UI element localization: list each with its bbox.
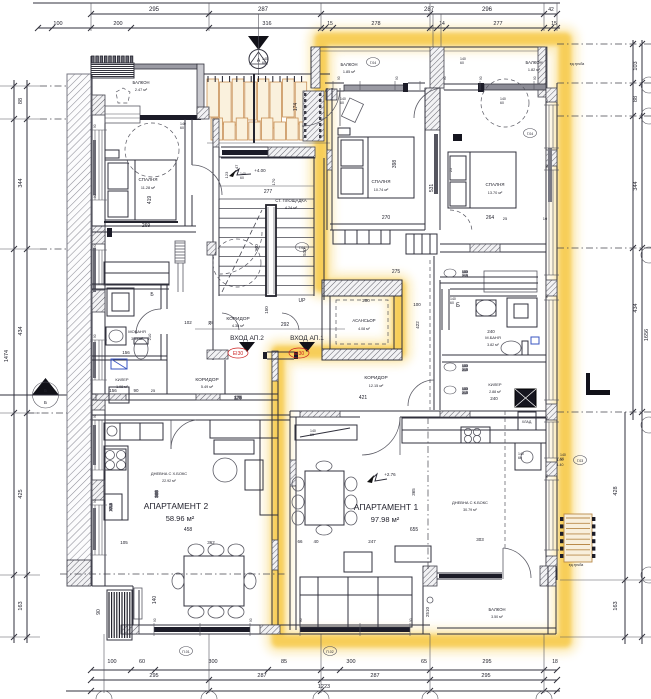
svg-text:БАЛКОН: БАЛКОН bbox=[133, 80, 150, 85]
svg-text:4.08 м²: 4.08 м² bbox=[358, 327, 370, 331]
svg-text:UP: UP bbox=[299, 298, 307, 304]
svg-text:210: 210 bbox=[147, 333, 152, 340]
svg-text:Г.04: Г.04 bbox=[299, 246, 305, 250]
svg-text:М.БАНЯ: М.БАНЯ bbox=[485, 335, 501, 340]
svg-text:344: 344 bbox=[18, 178, 24, 187]
svg-text:422: 422 bbox=[415, 321, 420, 329]
svg-text:66: 66 bbox=[297, 539, 303, 544]
svg-text:14: 14 bbox=[439, 21, 445, 27]
svg-text:15: 15 bbox=[327, 21, 333, 27]
svg-text:3.50 м²: 3.50 м² bbox=[491, 615, 503, 619]
svg-text:90: 90 bbox=[479, 76, 483, 80]
svg-text:3.13 м²: 3.13 м² bbox=[131, 337, 143, 341]
svg-text:287: 287 bbox=[257, 673, 266, 679]
svg-text:90: 90 bbox=[545, 164, 549, 168]
svg-text:1474: 1474 bbox=[4, 350, 10, 362]
svg-text:425: 425 bbox=[18, 489, 24, 498]
svg-text:277: 277 bbox=[493, 21, 502, 27]
svg-text:60: 60 bbox=[450, 301, 454, 305]
svg-text:344: 344 bbox=[633, 181, 639, 190]
svg-text:25: 25 bbox=[448, 167, 453, 172]
svg-text:13.70 м²: 13.70 м² bbox=[488, 191, 503, 195]
svg-text:215: 215 bbox=[462, 391, 468, 395]
svg-text:362: 362 bbox=[207, 540, 215, 545]
svg-text:1656: 1656 bbox=[644, 329, 650, 341]
svg-text:90: 90 bbox=[337, 76, 341, 80]
svg-text:ед.тръба: ед.тръба bbox=[570, 62, 585, 66]
svg-text:200: 200 bbox=[362, 298, 370, 303]
svg-text:СПАЛНЯ: СПАЛНЯ bbox=[485, 182, 504, 187]
svg-text:90: 90 bbox=[299, 618, 303, 622]
svg-text:Г.04: Г.04 bbox=[527, 132, 533, 136]
svg-text:3.82 м²: 3.82 м² bbox=[487, 343, 499, 347]
svg-text:60: 60 bbox=[180, 126, 184, 130]
svg-text:Г.03: Г.03 bbox=[577, 459, 583, 463]
svg-text:СПАЛНЯ: СПАЛНЯ bbox=[371, 179, 390, 184]
svg-text:60: 60 bbox=[262, 61, 266, 65]
svg-text:287: 287 bbox=[424, 7, 435, 13]
svg-text:269: 269 bbox=[142, 223, 151, 229]
svg-text:150: 150 bbox=[264, 306, 269, 314]
svg-text:295: 295 bbox=[482, 659, 491, 665]
svg-text:170: 170 bbox=[271, 178, 276, 185]
svg-text:1.82 м²: 1.82 м² bbox=[528, 68, 541, 72]
svg-text:СТ. ПЛОЩАДКА: СТ. ПЛОЩАДКА bbox=[275, 198, 306, 203]
svg-text:ДНЕВНА С К.БОКС: ДНЕВНА С К.БОКС bbox=[452, 500, 488, 505]
svg-text:398: 398 bbox=[392, 160, 398, 169]
svg-text:60: 60 bbox=[460, 61, 464, 65]
svg-text:368: 368 bbox=[154, 490, 159, 498]
svg-text:296: 296 bbox=[482, 7, 493, 13]
svg-text:БАЛКОН: БАЛКОН bbox=[489, 607, 506, 612]
svg-text:КОРИДОР: КОРИДОР bbox=[195, 377, 218, 383]
svg-text:П.01: П.01 bbox=[182, 650, 189, 654]
svg-text:2.47 м²: 2.47 м² bbox=[135, 88, 148, 92]
svg-text:4.38 м²: 4.38 м² bbox=[232, 324, 245, 328]
svg-text:Б: Б bbox=[44, 400, 47, 405]
svg-text:295: 295 bbox=[481, 673, 490, 679]
svg-text:Б: Б bbox=[456, 303, 460, 309]
svg-text:295: 295 bbox=[149, 673, 158, 679]
svg-text:5.49 м²: 5.49 м² bbox=[201, 385, 214, 389]
svg-text:434: 434 bbox=[633, 303, 639, 312]
svg-text:90: 90 bbox=[395, 76, 399, 80]
svg-text:90: 90 bbox=[249, 618, 253, 622]
svg-text:200: 200 bbox=[113, 21, 122, 27]
svg-text:278: 278 bbox=[371, 21, 380, 27]
svg-text:247: 247 bbox=[368, 539, 376, 544]
svg-text:90: 90 bbox=[153, 618, 157, 622]
svg-text:1.98 м²: 1.98 м² bbox=[116, 385, 128, 389]
svg-text:КОРИДОР: КОРИДОР bbox=[364, 375, 387, 381]
svg-text:КИЛЕР: КИЛЕР bbox=[115, 377, 128, 382]
svg-text:90: 90 bbox=[93, 334, 97, 338]
svg-text:БАЛКОН: БАЛКОН bbox=[526, 60, 543, 65]
svg-text:АСАНСЬОР: АСАНСЬОР bbox=[352, 318, 375, 323]
svg-text:90: 90 bbox=[545, 416, 549, 420]
svg-text:88: 88 bbox=[633, 96, 639, 102]
svg-text:1.00: 1.00 bbox=[557, 458, 564, 462]
svg-text:434: 434 bbox=[18, 326, 24, 335]
svg-text:100: 100 bbox=[413, 302, 421, 307]
svg-text:11.28 м²: 11.28 м² bbox=[141, 186, 156, 190]
svg-text:240: 240 bbox=[487, 329, 495, 334]
svg-text:25: 25 bbox=[151, 388, 156, 393]
svg-text:ДНЕВНА С Х.БОКС: ДНЕВНА С Х.БОКС bbox=[151, 471, 187, 476]
svg-text:АПАРТАМЕНТ 2: АПАРТАМЕНТ 2 bbox=[144, 501, 209, 511]
svg-text:421: 421 bbox=[359, 395, 368, 401]
svg-text:300: 300 bbox=[208, 659, 217, 665]
svg-text:140: 140 bbox=[152, 596, 158, 605]
svg-text:+4.00: +4.00 bbox=[254, 168, 266, 173]
svg-text:163: 163 bbox=[613, 601, 619, 610]
svg-text:90: 90 bbox=[533, 76, 537, 80]
svg-text:123: 123 bbox=[224, 171, 229, 178]
svg-text:60: 60 bbox=[310, 433, 314, 437]
svg-text:КОРИДОР: КОРИДОР bbox=[226, 316, 249, 322]
svg-text:90: 90 bbox=[96, 609, 102, 615]
svg-text:60: 60 bbox=[340, 101, 344, 105]
svg-text:58.96 м²: 58.96 м² bbox=[166, 514, 195, 523]
svg-text:287: 287 bbox=[258, 7, 269, 13]
svg-text:156: 156 bbox=[122, 350, 130, 355]
svg-text:ВХОД АП.2: ВХОД АП.2 bbox=[230, 335, 264, 342]
svg-text:25: 25 bbox=[209, 320, 214, 325]
svg-text:103: 103 bbox=[633, 61, 639, 70]
svg-text:П.02: П.02 bbox=[326, 650, 333, 654]
svg-text:105: 105 bbox=[120, 540, 128, 545]
svg-text:40: 40 bbox=[313, 539, 319, 544]
svg-text:Г.04: Г.04 bbox=[370, 61, 376, 65]
svg-text:12.15 м²: 12.15 м² bbox=[369, 384, 384, 388]
svg-text:МОБАНЯ: МОБАНЯ bbox=[128, 329, 146, 334]
svg-text:240: 240 bbox=[490, 396, 498, 401]
svg-text:100: 100 bbox=[53, 21, 62, 27]
svg-text:365: 365 bbox=[411, 488, 416, 496]
svg-text:85: 85 bbox=[281, 659, 287, 665]
svg-text:+2.76: +2.76 bbox=[384, 472, 396, 477]
svg-text:90: 90 bbox=[93, 124, 97, 128]
svg-text:60: 60 bbox=[500, 101, 504, 105]
svg-text:175: 175 bbox=[234, 395, 242, 400]
svg-text:264: 264 bbox=[486, 215, 495, 221]
svg-text:ВХОД АП.1: ВХОД АП.1 bbox=[290, 335, 324, 342]
svg-text:1223: 1223 bbox=[318, 684, 330, 690]
svg-text:88: 88 bbox=[18, 98, 24, 104]
svg-text:458: 458 bbox=[184, 527, 193, 533]
svg-text:419: 419 bbox=[147, 196, 153, 205]
svg-text:90: 90 bbox=[93, 194, 97, 198]
svg-text:15: 15 bbox=[551, 21, 557, 27]
svg-text:42: 42 bbox=[548, 7, 554, 13]
svg-text:1.85 м²: 1.85 м² bbox=[343, 70, 356, 74]
svg-text:275: 275 bbox=[392, 269, 401, 275]
svg-text:ХЛ.В: ХЛ.В bbox=[109, 502, 113, 511]
svg-text:90: 90 bbox=[545, 99, 549, 103]
svg-text:КИЛЕР: КИЛЕР bbox=[488, 382, 501, 387]
svg-text:БАЛКОН: БАЛКОН bbox=[341, 62, 358, 67]
svg-text:65: 65 bbox=[421, 659, 427, 665]
svg-text:215: 215 bbox=[462, 368, 468, 372]
svg-text:100: 100 bbox=[107, 659, 116, 665]
svg-text:60: 60 bbox=[240, 176, 244, 180]
svg-text:295: 295 bbox=[149, 7, 160, 13]
svg-text:АПАРТАМЕНТ 1: АПАРТАМЕНТ 1 bbox=[354, 502, 419, 512]
svg-text:90: 90 bbox=[545, 294, 549, 298]
svg-text:90: 90 bbox=[545, 474, 549, 478]
svg-text:22.92 м²: 22.92 м² bbox=[162, 479, 176, 483]
svg-text:428: 428 bbox=[613, 486, 619, 495]
svg-text:EI30: EI30 bbox=[233, 351, 244, 357]
svg-text:10.74 м²: 10.74 м² bbox=[374, 188, 389, 192]
svg-text:215: 215 bbox=[462, 274, 468, 278]
svg-text:97.98 м²: 97.98 м² bbox=[371, 515, 400, 524]
svg-text:EI30: EI30 bbox=[294, 351, 305, 357]
svg-text:240: 240 bbox=[254, 244, 259, 252]
svg-text:1.40: 1.40 bbox=[557, 463, 564, 467]
svg-text:531: 531 bbox=[429, 184, 435, 193]
svg-text:4.24 м²: 4.24 м² bbox=[285, 206, 298, 210]
svg-text:2510: 2510 bbox=[425, 606, 430, 617]
svg-text:2.88 м²: 2.88 м² bbox=[489, 390, 501, 394]
svg-text:90: 90 bbox=[93, 414, 97, 418]
svg-text:174: 174 bbox=[293, 103, 299, 112]
svg-text:316: 316 bbox=[262, 21, 271, 27]
svg-text:90: 90 bbox=[93, 499, 97, 503]
svg-text:90: 90 bbox=[409, 618, 413, 622]
svg-text:Б: Б bbox=[44, 388, 47, 393]
svg-text:300: 300 bbox=[346, 659, 355, 665]
svg-text:СПАЛНЯ: СПАЛНЯ bbox=[138, 177, 157, 182]
svg-text:ХЛАД.: ХЛАД. bbox=[522, 420, 532, 424]
svg-text:163: 163 bbox=[18, 601, 24, 610]
svg-text:287: 287 bbox=[370, 673, 379, 679]
svg-text:303: 303 bbox=[476, 537, 484, 542]
svg-text:277: 277 bbox=[264, 189, 273, 195]
svg-text:90: 90 bbox=[93, 244, 97, 248]
svg-text:25: 25 bbox=[503, 216, 508, 221]
svg-text:30.79 м²: 30.79 м² bbox=[463, 508, 477, 512]
svg-text:90: 90 bbox=[443, 76, 447, 80]
svg-text:60: 60 bbox=[139, 659, 145, 665]
svg-text:292: 292 bbox=[281, 322, 290, 328]
svg-text:ед.тръба: ед.тръба bbox=[569, 563, 584, 567]
svg-text:90: 90 bbox=[133, 388, 139, 393]
svg-text:655: 655 bbox=[410, 527, 419, 533]
svg-text:156: 156 bbox=[109, 388, 117, 393]
svg-text:60: 60 bbox=[518, 456, 522, 460]
svg-text:102: 102 bbox=[184, 320, 192, 325]
svg-text:10: 10 bbox=[543, 216, 548, 221]
svg-text:18: 18 bbox=[552, 659, 558, 665]
svg-text:270: 270 bbox=[382, 215, 391, 221]
